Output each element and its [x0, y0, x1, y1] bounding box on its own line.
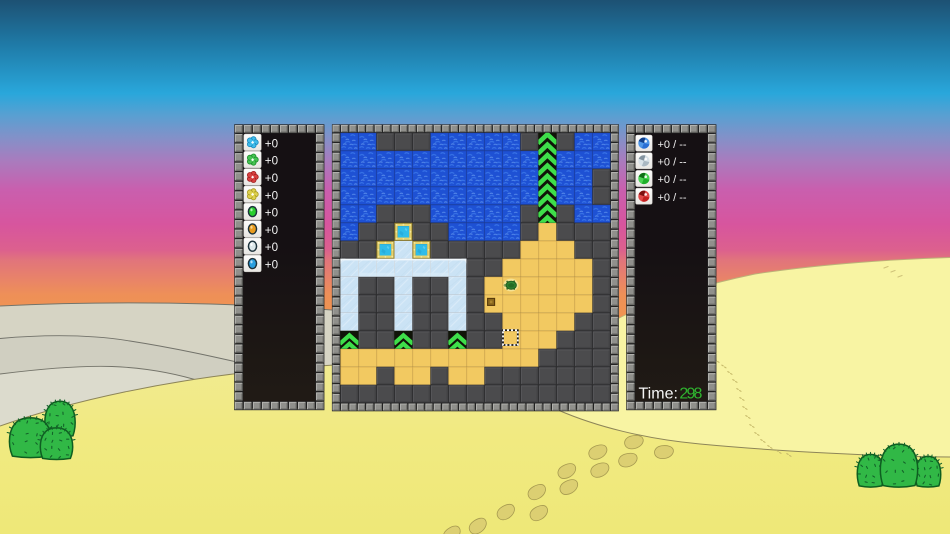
svg-text:+0: +0	[265, 241, 278, 254]
svg-text:+0: +0	[265, 172, 278, 185]
svg-text:+0: +0	[265, 155, 278, 168]
svg-text:+0 / --: +0 / --	[658, 174, 687, 186]
svg-text:+0 / --: +0 / --	[658, 157, 687, 169]
svg-text:+0 / --: +0 / --	[658, 192, 687, 204]
svg-text:+0: +0	[265, 189, 278, 202]
svg-text:+0 / --: +0 / --	[658, 139, 687, 151]
svg-text:+0: +0	[265, 259, 278, 272]
svg-text:+0: +0	[265, 207, 278, 220]
svg-text:Time:298: Time:298	[639, 385, 703, 402]
svg-text:+0: +0	[265, 224, 278, 237]
svg-text:+0: +0	[265, 137, 278, 150]
